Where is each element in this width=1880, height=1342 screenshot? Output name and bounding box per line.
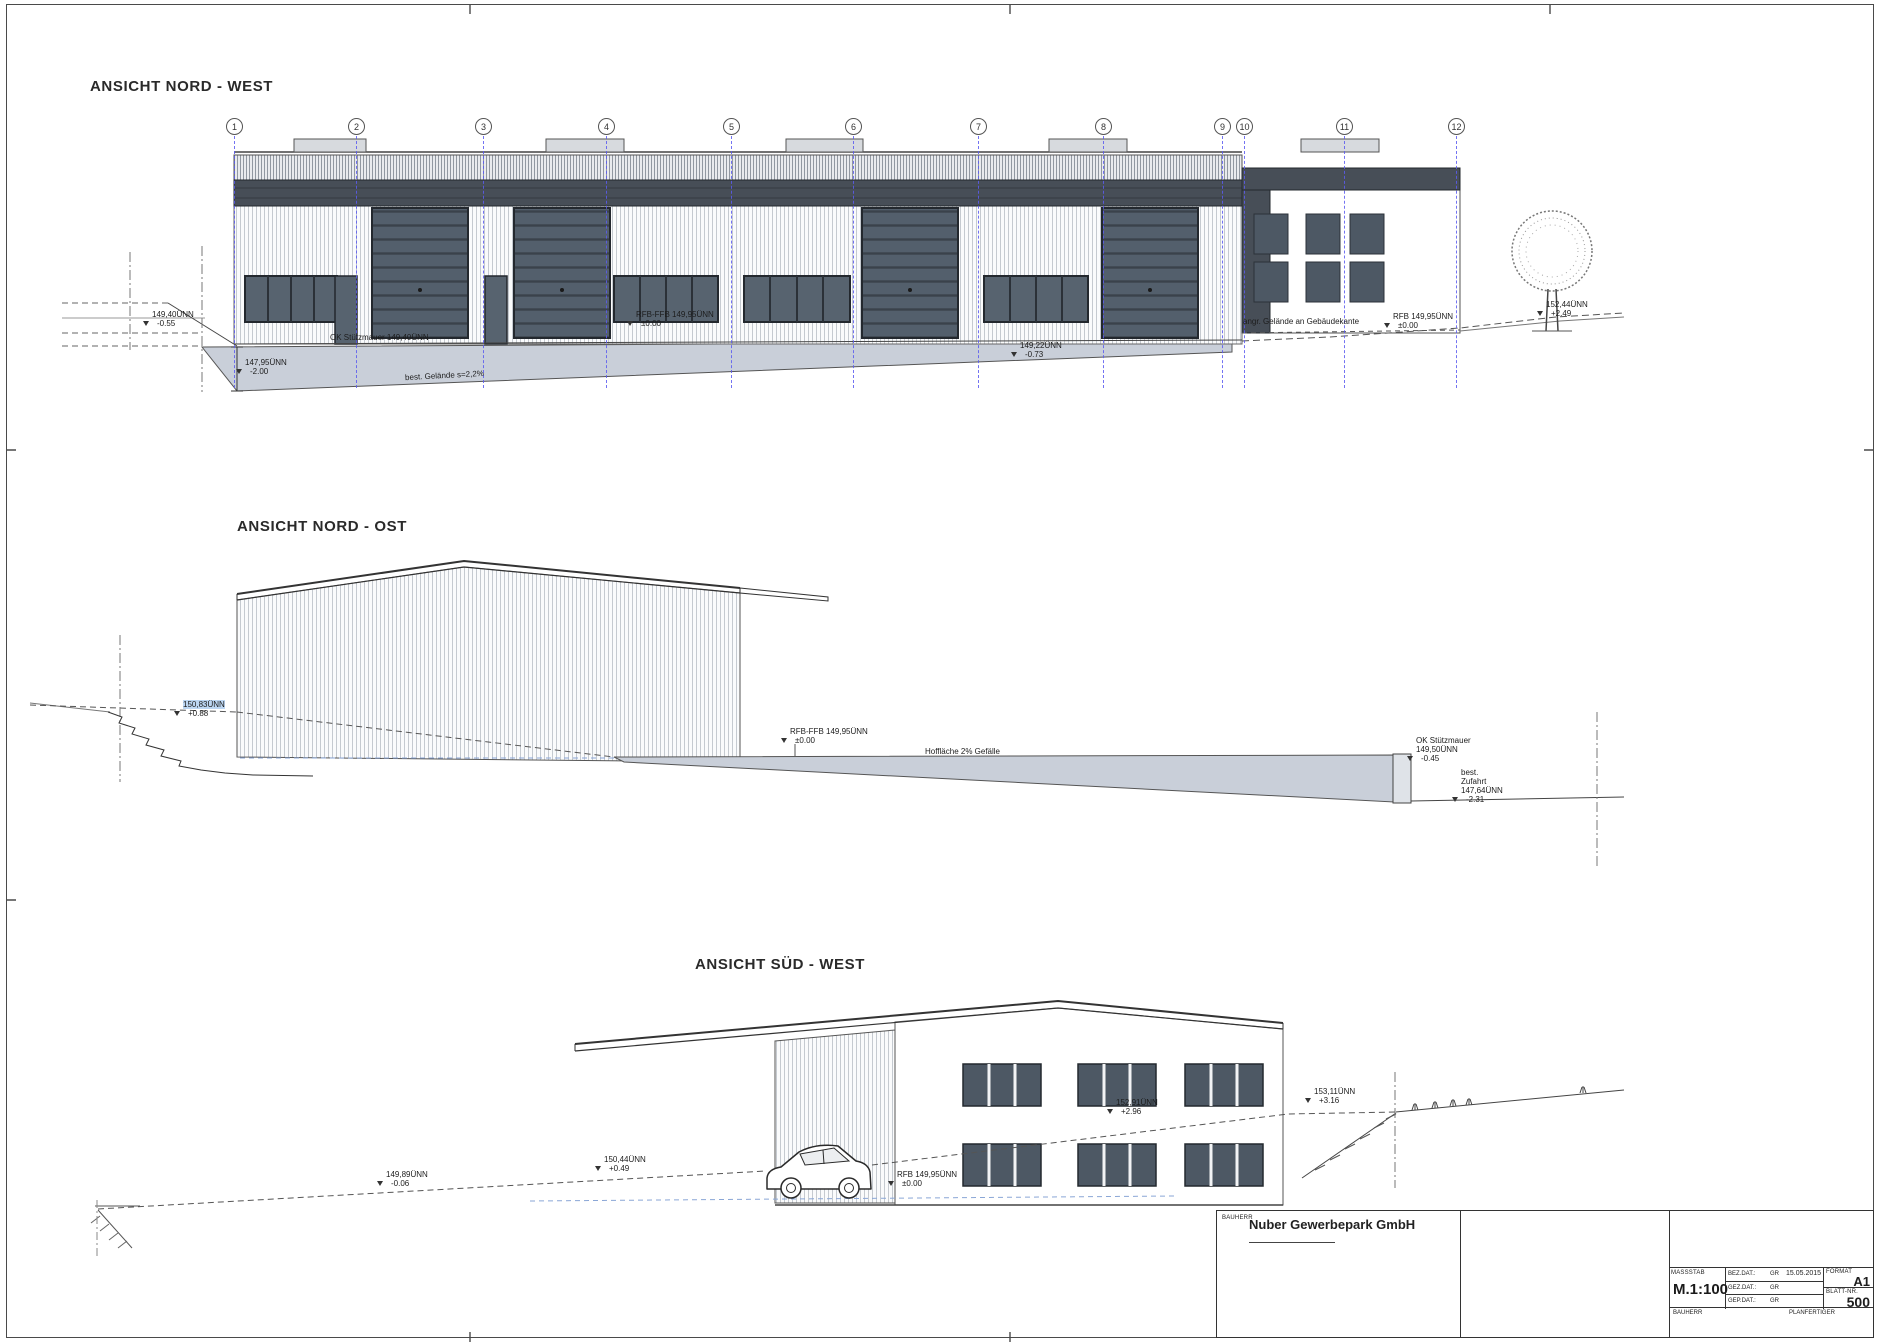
scale-value: M.1:100 — [1673, 1281, 1728, 1298]
title-block-grid: MASSSTAB M.1:100 BEZ.DAT.: GR 15.05.2015… — [1669, 1267, 1874, 1308]
level-annotation: best.Zufahrt147,64ÜNN-2.31 — [1461, 768, 1503, 804]
format-value: A1 — [1853, 1274, 1870, 1289]
grid-axis-line — [731, 136, 732, 388]
grid-axis-line — [1244, 136, 1245, 388]
grid-axis-bubble: 8 — [1095, 118, 1112, 135]
grid-axis-line — [853, 136, 854, 388]
level-annotation: OK Stützmauer 149,40ÜNN — [330, 333, 429, 342]
view-title-nord-ost: ANSICHT NORD - OST — [237, 518, 407, 535]
client-name: Nuber Gewerbepark GmbH — [1249, 1217, 1415, 1232]
grid-axis-bubble: 7 — [970, 118, 987, 135]
level-annotation: 153,11ÜNN+3.16 — [1314, 1087, 1355, 1105]
grid-axis-bubble: 1 — [226, 118, 243, 135]
plan-sheet: ANSICHT NORD - WEST ANSICHT NORD - OST A… — [0, 0, 1880, 1342]
title-block: BAUHERR Nuber Gewerbepark GmbH MASSSTAB … — [1216, 1210, 1874, 1338]
grid-axis-bubble: 12 — [1448, 118, 1465, 135]
level-annotation: RFB-FFB 149,95ÜNN±0.00 — [790, 727, 868, 745]
grid-axis-bubble: 2 — [348, 118, 365, 135]
grid-axis-bubble: 11 — [1336, 118, 1353, 135]
grid-axis-bubble: 5 — [723, 118, 740, 135]
level-annotation: OK Stützmauer149,50ÜNN-0.45 — [1416, 736, 1471, 763]
date-row-label: GEP.DAT.: — [1728, 1298, 1756, 1304]
grid-axis-line — [483, 136, 484, 388]
text-overlay: ANSICHT NORD - WEST ANSICHT NORD - OST A… — [0, 0, 1880, 1342]
bauherr-cell-label: BAUHERR — [1673, 1310, 1702, 1316]
grid-axis-line — [356, 136, 357, 388]
level-annotation: RFB-FFB 149,95ÜNN±0.00 — [636, 310, 714, 328]
grid-axis-bubble: 3 — [475, 118, 492, 135]
format-label: FORMAT — [1826, 1269, 1852, 1275]
level-annotation: 150,83ÜNN+0.88 — [183, 700, 225, 718]
sheet-number: 500 — [1847, 1294, 1870, 1310]
grid-axis-bubble: 4 — [598, 118, 615, 135]
grid-axis-bubble: 9 — [1214, 118, 1231, 135]
view-title-nord-west: ANSICHT NORD - WEST — [90, 78, 273, 95]
grid-axis-line — [1456, 136, 1457, 388]
level-annotation: 149,89ÜNN-0.06 — [386, 1170, 428, 1188]
level-annotation: best. Gelände s=2,2% — [405, 369, 484, 382]
view-title-sued-west: ANSICHT SÜD - WEST — [695, 956, 865, 973]
level-annotation: 152,91ÜNN+2.96 — [1116, 1098, 1158, 1116]
level-annotation: angr. Gelände an Gebäudekante — [1243, 317, 1359, 326]
level-annotation: 150,44ÜNN+0.49 — [604, 1155, 646, 1173]
date-row-label: GEZ.DAT.: — [1728, 1285, 1756, 1291]
grid-axis-bubble: 10 — [1236, 118, 1253, 135]
date-row-initials: GR — [1770, 1285, 1779, 1291]
level-annotation: RFB 149,95ÜNN±0.00 — [1393, 312, 1453, 330]
level-annotation: Hoffläche 2% Gefälle — [925, 747, 1000, 756]
grid-axis-line — [606, 136, 607, 388]
massstab-label: MASSSTAB — [1671, 1270, 1705, 1276]
signature-line — [1249, 1242, 1335, 1243]
title-block-divider — [1460, 1211, 1461, 1337]
date-row-label: BEZ.DAT.: — [1728, 1271, 1756, 1277]
level-annotation: 147,95ÜNN-2.00 — [245, 358, 287, 376]
grid-axis-line — [978, 136, 979, 388]
date-row-date: 15.05.2015 — [1786, 1270, 1821, 1277]
level-annotation: 152,44ÜNN+2.49 — [1546, 300, 1588, 318]
grid-axis-bubble: 6 — [845, 118, 862, 135]
level-annotation: 149,22ÜNN-0.73 — [1020, 341, 1062, 359]
level-annotation: 149,40ÜNN-0.55 — [152, 310, 194, 328]
grid-axis-line — [1222, 136, 1223, 388]
grid-axis-line — [1103, 136, 1104, 388]
planfertiger-label: PLANFERTIGER — [1789, 1310, 1835, 1316]
grid-axis-line — [1344, 136, 1345, 388]
date-row-initials: GR — [1770, 1271, 1779, 1277]
grid-axis-line — [234, 136, 235, 388]
date-row-initials: GR — [1770, 1298, 1779, 1304]
level-annotation: RFB 149,95ÜNN±0.00 — [897, 1170, 957, 1188]
